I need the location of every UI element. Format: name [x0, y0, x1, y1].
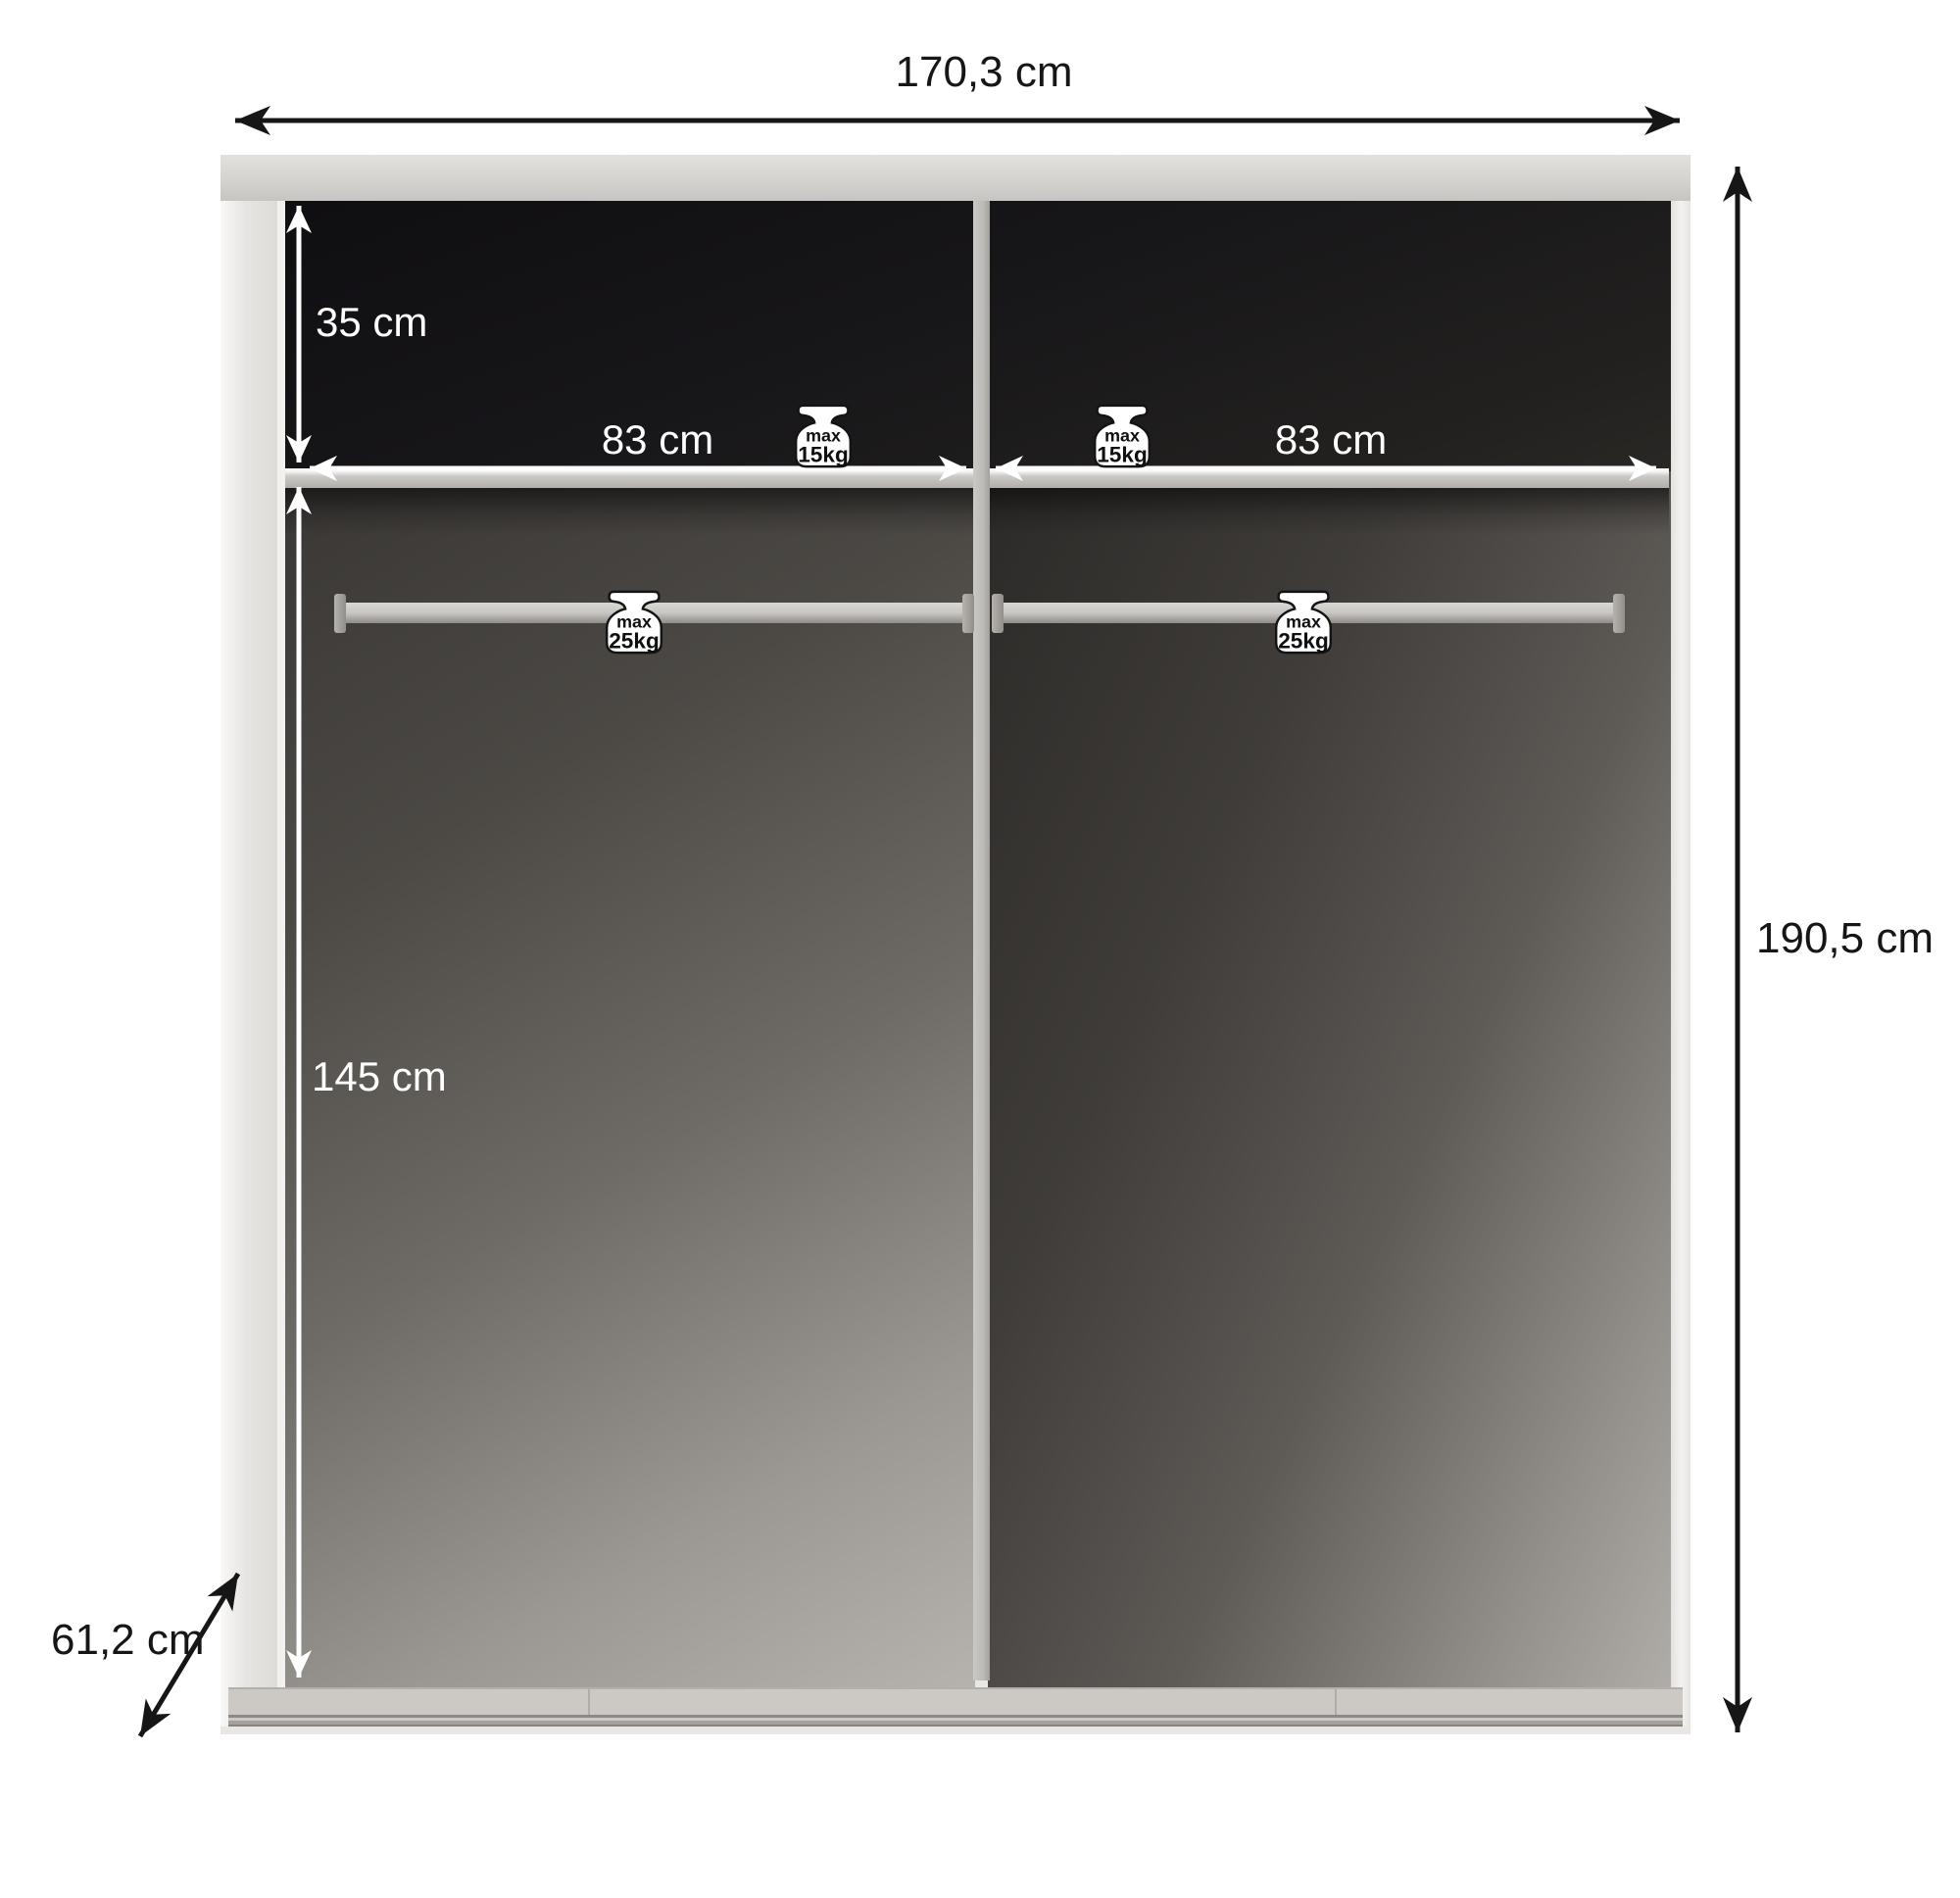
top-panel	[220, 155, 1690, 201]
right-rail-wall-bracket	[1613, 594, 1625, 633]
right-shelf	[990, 468, 1669, 488]
left-rail-divider-bracket	[962, 594, 974, 633]
wardrobe-dimension-diagram: 170,3 cm 190,5 cm 61,2 cm 35 cm 145 cm 8…	[0, 0, 1960, 1898]
max-load-badge-rail-right: max 25kg	[1271, 590, 1336, 655]
right-shelf-shadow	[990, 488, 1669, 535]
badge-kg-label: 15kg	[1097, 442, 1148, 466]
right-shelf-width-label: 83 cm	[1233, 419, 1429, 461]
depth-dimension-label: 61,2 cm	[51, 1619, 205, 1662]
left-shelf-width-label: 83 cm	[560, 419, 756, 461]
upper-compartment-height-label: 35 cm	[316, 302, 427, 343]
floor-seam-right	[1335, 1689, 1337, 1715]
height-dimension-label: 190,5 cm	[1756, 917, 1934, 960]
left-shelf	[285, 468, 973, 488]
right-rail-divider-bracket	[992, 594, 1004, 633]
badge-kg-label: 25kg	[1278, 628, 1329, 653]
left-rail-wall-bracket	[334, 594, 346, 633]
badge-kg-label: 25kg	[609, 628, 660, 653]
badge-kg-label: 15kg	[798, 442, 849, 466]
max-load-badge-shelf-right: max 15kg	[1090, 404, 1154, 468]
width-dimension-label: 170,3 cm	[861, 51, 1106, 94]
floor-seam-left	[588, 1689, 590, 1715]
max-load-badge-shelf-left: max 15kg	[791, 404, 856, 468]
left-panel-front-edge	[277, 201, 285, 1690]
sliding-door-track	[228, 1715, 1683, 1718]
max-load-badge-rail-left: max 25kg	[602, 590, 666, 655]
lower-compartment-height-label: 145 cm	[312, 1056, 447, 1097]
center-divider-panel	[973, 201, 990, 1680]
left-shelf-shadow	[285, 488, 973, 535]
bottom-front-edge	[220, 1727, 1690, 1734]
